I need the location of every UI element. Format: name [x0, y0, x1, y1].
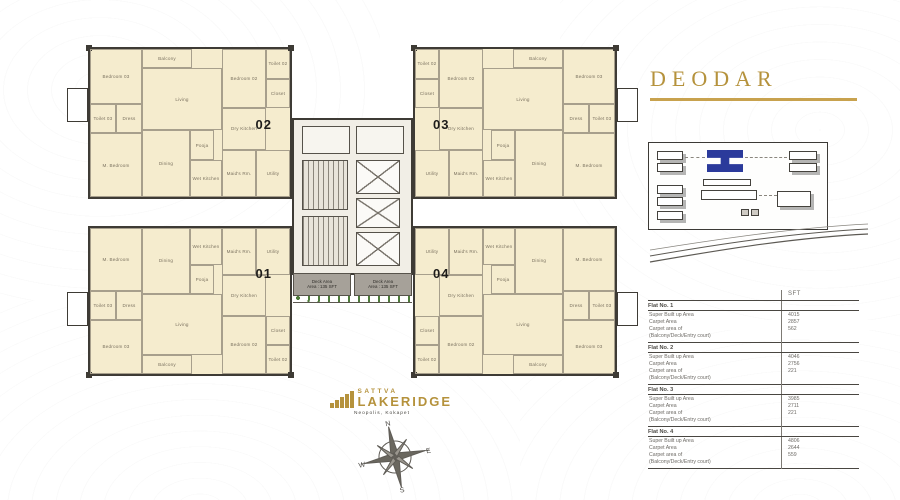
- room-maid-s-rm-: Maid's Rm.: [222, 228, 256, 275]
- area-row: (Balcony/Deck/Entry court): [648, 417, 859, 424]
- room-label: Dry Kitchen: [448, 126, 474, 131]
- area-row-value: 2711: [788, 403, 799, 410]
- room-closet: Closet: [266, 79, 290, 109]
- unit-number-03: 03: [433, 117, 449, 132]
- flat-name-3: Flat No. 3: [648, 385, 859, 395]
- room-toilet-02: Toilet 02: [266, 345, 290, 374]
- room-closet: Closet: [415, 316, 439, 345]
- room-label: Pooja: [497, 143, 510, 148]
- room-label: Toilet 03: [593, 303, 612, 308]
- room-label: Toilet 03: [593, 116, 612, 121]
- room-bedroom-03: Bedroom 03: [563, 320, 615, 374]
- site-building: [657, 151, 683, 160]
- area-row-label: Carpet Area: [649, 403, 677, 410]
- room-label: Dress: [570, 303, 583, 308]
- room-label: M. Bedroom: [102, 163, 129, 168]
- room-label: Wet Kitchen: [193, 244, 220, 249]
- unit-03: Bedroom 03BalconyBedroom 02Toilet 02Clos…: [413, 47, 617, 199]
- room-label: Maid's Rm.: [454, 249, 479, 254]
- room-label: M. Bedroom: [575, 257, 602, 262]
- compass-south-label: S: [399, 487, 405, 494]
- room-living: Living: [483, 68, 563, 130]
- room-maid-s-rm-: Maid's Rm.: [449, 228, 483, 275]
- area-row: Carpet Area2857: [648, 319, 859, 326]
- room-dining: Dining: [515, 228, 563, 294]
- room-m-bedroom: M. Bedroom: [90, 133, 142, 197]
- room-label: Toilet 03: [94, 303, 113, 308]
- room-label: Closet: [271, 91, 285, 96]
- room-balcony: Balcony: [513, 355, 563, 374]
- room-label: Toilet 02: [269, 357, 288, 362]
- room-label: Pooja: [196, 277, 209, 282]
- site-building-deodar-highlight: [707, 150, 743, 172]
- room-label: Utility: [267, 249, 280, 254]
- room-pooja: Pooja: [491, 130, 515, 160]
- site-building: [751, 209, 759, 216]
- area-row: Carpet Area2644: [648, 445, 859, 452]
- room-label: Bedroom 03: [575, 74, 602, 79]
- room-dining: Dining: [142, 130, 190, 197]
- site-building: [657, 211, 683, 220]
- room-label: Toilet 02: [269, 61, 288, 66]
- room-living: Living: [483, 294, 563, 355]
- site-building: [657, 163, 683, 172]
- room-label: Wet Kitchen: [486, 176, 513, 181]
- room-dress: Dress: [116, 291, 142, 320]
- area-row-label: Carpet area of: [649, 368, 682, 375]
- flat-name-4: Flat No. 4: [648, 427, 859, 437]
- area-row-value: 4806: [788, 438, 800, 445]
- flat-rows-1: Super Built up Area4015Carpet Area2857Ca…: [648, 311, 859, 343]
- site-building: [789, 151, 817, 160]
- area-table-body: Flat No. 1Super Built up Area4015Carpet …: [648, 301, 859, 469]
- area-row-label: Carpet area of: [649, 326, 682, 333]
- room-label: Living: [175, 97, 188, 102]
- room-label: Bedroom 02: [230, 342, 257, 347]
- compass-rose-icon: N E S W: [358, 420, 432, 494]
- site-dotted-link: [745, 157, 787, 158]
- room-label: Dress: [123, 303, 136, 308]
- area-row-value: 4046: [788, 354, 800, 361]
- room-living: Living: [142, 68, 222, 130]
- room-toilet-03: Toilet 03: [589, 104, 615, 134]
- room-label: Dry Kitchen: [448, 293, 474, 298]
- room-wet-kitchen: Wet Kitchen: [190, 228, 222, 265]
- room-wet-kitchen: Wet Kitchen: [190, 160, 222, 197]
- site-building: [777, 191, 811, 207]
- title-rule: [650, 98, 857, 101]
- room-bedroom-02: Bedroom 02: [439, 49, 483, 108]
- area-row: Carpet area of221: [648, 410, 859, 417]
- room-label: Dining: [159, 161, 173, 166]
- area-row: Carpet Area2756: [648, 361, 859, 368]
- logo-bars-icon: [330, 390, 354, 408]
- room-utility: Utility: [415, 150, 449, 197]
- area-row: Carpet area of562: [648, 326, 859, 333]
- area-row-label: (Balcony/Deck/Entry court): [649, 459, 711, 466]
- area-row-value: 3985: [788, 396, 800, 403]
- room-label: Closet: [271, 328, 285, 333]
- room-label: Bedroom 02: [230, 76, 257, 81]
- room-m-bedroom: M. Bedroom: [563, 133, 615, 197]
- room-label: Living: [175, 322, 188, 327]
- room-label: Dining: [532, 258, 546, 263]
- unit-number-04: 04: [433, 266, 449, 281]
- area-row: Super Built up Area4806: [648, 438, 859, 445]
- room-bedroom-02: Bedroom 02: [222, 316, 266, 374]
- area-row: Carpet area of559: [648, 452, 859, 459]
- room-label: Maid's Rm.: [227, 171, 252, 176]
- room-label: Bedroom 02: [447, 342, 474, 347]
- table-header: SFT: [648, 290, 859, 301]
- plan-units: Bedroom 03BalconyBedroom 02Toilet 02Clos…: [55, 30, 630, 385]
- area-table: SFT Flat No. 1Super Built up Area4015Car…: [648, 290, 859, 469]
- area-row: Super Built up Area4046: [648, 354, 859, 361]
- room-label: Closet: [420, 91, 434, 96]
- area-row-value: 2756: [788, 361, 800, 368]
- room-bedroom-03: Bedroom 03: [563, 49, 615, 104]
- room-label: Balcony: [529, 362, 547, 367]
- room-label: Pooja: [196, 143, 209, 148]
- unit-number-01: 01: [256, 266, 272, 281]
- site-building: [657, 197, 683, 206]
- area-row: (Balcony/Deck/Entry court): [648, 333, 859, 340]
- site-dotted-link: [759, 195, 777, 196]
- area-row-value: 562: [788, 326, 797, 333]
- room-label: Dining: [159, 258, 173, 263]
- room-toilet-02: Toilet 02: [415, 345, 439, 374]
- room-label: Utility: [426, 249, 439, 254]
- flat-rows-4: Super Built up Area4806Carpet Area2644Ca…: [648, 437, 859, 469]
- room-label: Dining: [532, 161, 546, 166]
- flat-rows-3: Super Built up Area3985Carpet Area2711Ca…: [648, 395, 859, 427]
- room-utility: Utility: [256, 150, 290, 197]
- unit-01: Bedroom 03BalconyBedroom 02Toilet 02Clos…: [88, 226, 292, 376]
- room-label: Balcony: [158, 362, 176, 367]
- room-dining: Dining: [515, 130, 563, 197]
- room-label: Bedroom 02: [447, 76, 474, 81]
- flat-rows-2: Super Built up Area4046Carpet Area2756Ca…: [648, 353, 859, 385]
- unit-number-02: 02: [256, 117, 272, 132]
- area-row: Super Built up Area4015: [648, 312, 859, 319]
- room-dress: Dress: [563, 104, 589, 134]
- room-label: Maid's Rm.: [454, 171, 479, 176]
- room-toilet-03: Toilet 03: [90, 291, 116, 320]
- area-row-value: 559: [788, 452, 797, 459]
- site-clubhouse: [703, 179, 751, 186]
- room-label: Bedroom 03: [102, 74, 129, 79]
- site-road: [648, 222, 870, 264]
- area-row: Carpet area of221: [648, 368, 859, 375]
- compass-north-label: N: [385, 420, 391, 428]
- room-dining: Dining: [142, 228, 190, 294]
- area-row-label: Carpet Area: [649, 319, 677, 326]
- room-wet-kitchen: Wet Kitchen: [483, 160, 515, 197]
- room-label: Living: [516, 97, 529, 102]
- room-living: Living: [142, 294, 222, 355]
- area-row-label: Super Built up Area: [649, 354, 694, 361]
- area-row-label: Super Built up Area: [649, 312, 694, 319]
- room-maid-s-rm-: Maid's Rm.: [222, 150, 256, 197]
- area-row-label: Super Built up Area: [649, 396, 694, 403]
- room-toilet-03: Toilet 03: [90, 104, 116, 134]
- room-label: Toilet 02: [418, 357, 437, 362]
- tower-title: DEODAR: [650, 66, 778, 92]
- project-name: LAKERIDGE: [358, 395, 453, 408]
- room-label: Utility: [267, 171, 280, 176]
- room-toilet-02: Toilet 02: [415, 49, 439, 79]
- room-closet: Closet: [266, 316, 290, 345]
- room-label: Dry Kitchen: [231, 293, 257, 298]
- room-toilet-03: Toilet 03: [589, 291, 615, 320]
- site-clubhouse: [701, 190, 757, 200]
- area-row-value: 221: [788, 368, 797, 375]
- room-balcony: Balcony: [142, 49, 192, 68]
- room-pooja: Pooja: [190, 265, 214, 294]
- room-dress: Dress: [116, 104, 142, 134]
- room-bedroom-03: Bedroom 03: [90, 320, 142, 374]
- room-label: Closet: [420, 328, 434, 333]
- room-label: M. Bedroom: [575, 163, 602, 168]
- room-label: Living: [516, 322, 529, 327]
- room-bedroom-03: Bedroom 03: [90, 49, 142, 104]
- room-dress: Dress: [563, 291, 589, 320]
- room-label: Utility: [426, 171, 439, 176]
- room-label: Maid's Rm.: [227, 249, 252, 254]
- room-label: Dry Kitchen: [231, 126, 257, 131]
- area-row: Super Built up Area3985: [648, 396, 859, 403]
- area-row-label: Carpet area of: [649, 452, 682, 459]
- area-row-label: (Balcony/Deck/Entry court): [649, 375, 711, 382]
- unit-02: Bedroom 03BalconyBedroom 02Toilet 02Clos…: [88, 47, 292, 199]
- area-row-value: 221: [788, 410, 797, 417]
- site-building: [789, 163, 817, 172]
- area-row-value: 4015: [788, 312, 800, 319]
- area-row-label: Carpet Area: [649, 445, 677, 452]
- compass-west-label: W: [358, 461, 366, 469]
- unit-04: Bedroom 03BalconyBedroom 02Toilet 02Clos…: [413, 226, 617, 376]
- room-pooja: Pooja: [190, 130, 214, 160]
- project-logo: SATTVA LAKERIDGE Neopolis, Kokapet: [330, 388, 490, 416]
- room-label: Dress: [570, 116, 583, 121]
- room-label: Balcony: [529, 56, 547, 61]
- flat-name-1: Flat No. 1: [648, 301, 859, 311]
- room-m-bedroom: M. Bedroom: [90, 228, 142, 291]
- room-bedroom-02: Bedroom 02: [439, 316, 483, 374]
- site-map: [648, 142, 828, 230]
- area-row-value: 2857: [788, 319, 800, 326]
- room-label: Dress: [123, 116, 136, 121]
- site-dotted-link: [685, 157, 705, 158]
- area-row: (Balcony/Deck/Entry court): [648, 459, 859, 466]
- room-label: Toilet 03: [94, 116, 113, 121]
- area-row-value: 2644: [788, 445, 800, 452]
- brochure-page: Deck Area Area : 135 SFT Deck Area Area …: [0, 0, 900, 500]
- site-building: [741, 209, 749, 216]
- room-balcony: Balcony: [513, 49, 563, 68]
- floor-plan: Deck Area Area : 135 SFT Deck Area Area …: [55, 30, 630, 385]
- room-label: Bedroom 03: [102, 344, 129, 349]
- area-row-label: Super Built up Area: [649, 438, 694, 445]
- area-row: (Balcony/Deck/Entry court): [648, 375, 859, 382]
- room-label: Pooja: [497, 277, 510, 282]
- room-bedroom-02: Bedroom 02: [222, 49, 266, 108]
- flat-name-2: Flat No. 2: [648, 343, 859, 353]
- room-closet: Closet: [415, 79, 439, 109]
- area-row-label: Carpet area of: [649, 410, 682, 417]
- room-wet-kitchen: Wet Kitchen: [483, 228, 515, 265]
- area-row-label: Carpet Area: [649, 361, 677, 368]
- room-m-bedroom: M. Bedroom: [563, 228, 615, 291]
- room-label: Toilet 02: [418, 61, 437, 66]
- area-row: Carpet Area2711: [648, 403, 859, 410]
- area-row-label: (Balcony/Deck/Entry court): [649, 417, 711, 424]
- room-toilet-02: Toilet 02: [266, 49, 290, 79]
- room-label: Balcony: [158, 56, 176, 61]
- compass-east-label: E: [426, 447, 432, 455]
- room-maid-s-rm-: Maid's Rm.: [449, 150, 483, 197]
- site-building: [657, 185, 683, 194]
- room-label: M. Bedroom: [102, 257, 129, 262]
- room-label: Bedroom 03: [575, 344, 602, 349]
- room-label: Wet Kitchen: [486, 244, 513, 249]
- area-row-label: (Balcony/Deck/Entry court): [649, 333, 711, 340]
- project-location: Neopolis, Kokapet: [354, 411, 490, 416]
- room-balcony: Balcony: [142, 355, 192, 374]
- area-unit-header: SFT: [788, 291, 801, 297]
- room-label: Wet Kitchen: [193, 176, 220, 181]
- room-pooja: Pooja: [491, 265, 515, 294]
